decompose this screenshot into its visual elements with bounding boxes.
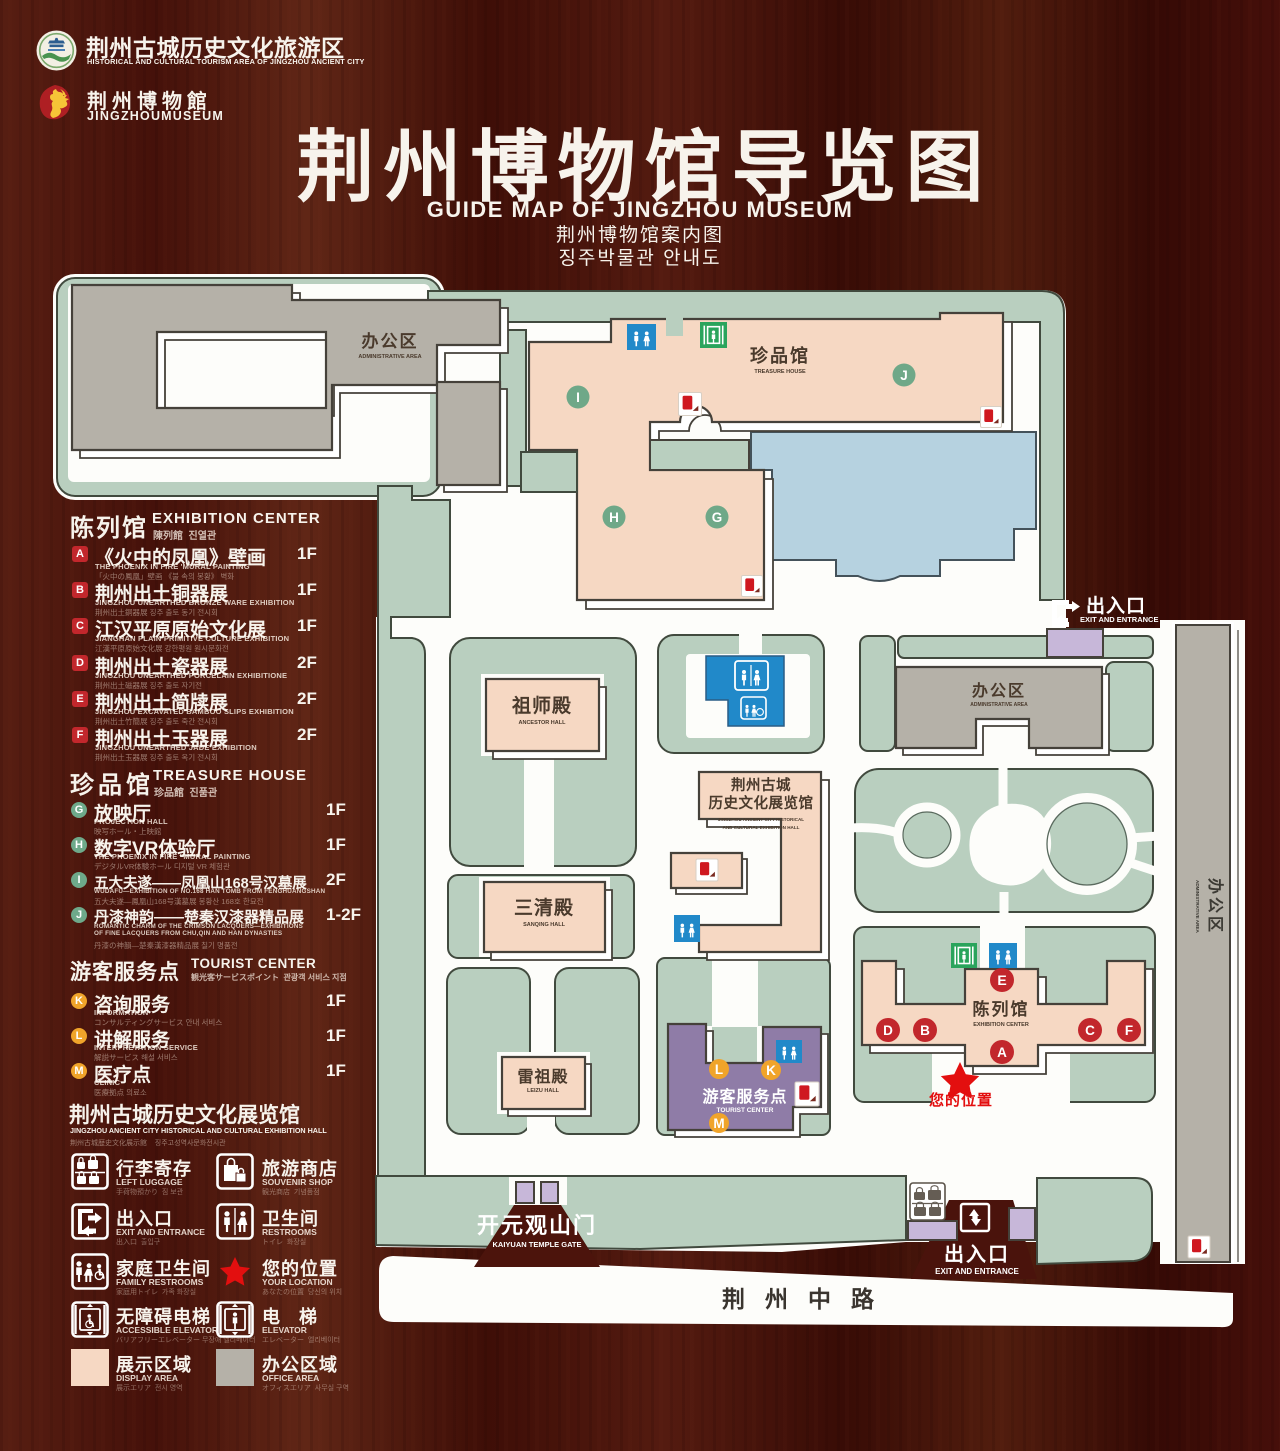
svg-text:荆州古城: 荆州古城 — [731, 776, 791, 794]
svg-text:A: A — [997, 1045, 1007, 1060]
svg-text:K: K — [766, 1063, 776, 1078]
svg-text:游客服务点: 游客服务点 — [702, 1087, 787, 1106]
svg-text:M: M — [713, 1116, 724, 1131]
svg-text:E: E — [997, 972, 1006, 988]
svg-text:KAIYUAN TEMPLE GATE: KAIYUAN TEMPLE GATE — [492, 1240, 581, 1249]
svg-text:珍品馆: 珍品馆 — [750, 345, 810, 366]
svg-text:G: G — [712, 510, 723, 525]
svg-text:H: H — [609, 510, 619, 525]
svg-text:ADMINISTRATIVE AREA: ADMINISTRATIVE AREA — [1195, 880, 1200, 934]
svg-text:D: D — [883, 1023, 893, 1038]
svg-text:荆州中路: 荆州中路 — [722, 1286, 894, 1312]
svg-text:EXIT AND ENTRANCE: EXIT AND ENTRANCE — [935, 1267, 1019, 1276]
svg-text:F: F — [1125, 1023, 1133, 1038]
svg-text:I: I — [576, 390, 580, 405]
svg-text:JINGZHOU ANCIENT CITY HISTORIC: JINGZHOU ANCIENT CITY HISTORICAL — [718, 817, 804, 822]
svg-text:J: J — [900, 368, 908, 383]
svg-text:出入口: 出入口 — [1086, 594, 1146, 617]
svg-text:办公区: 办公区 — [1206, 878, 1225, 935]
svg-text:开元观山门: 开元观山门 — [477, 1213, 597, 1238]
svg-text:C: C — [1085, 1023, 1095, 1038]
svg-text:TREASURE HOUSE: TREASURE HOUSE — [754, 369, 806, 375]
svg-text:陈列馆: 陈列馆 — [973, 999, 1030, 1019]
svg-text:TOURIST CENTER: TOURIST CENTER — [717, 1107, 774, 1114]
svg-text:EXHIBITION CENTER: EXHIBITION CENTER — [973, 1022, 1029, 1028]
svg-text:SANQING HALL: SANQING HALL — [523, 922, 566, 928]
svg-text:AND CULTURAL EXHIBITION HALL: AND CULTURAL EXHIBITION HALL — [723, 825, 800, 830]
svg-text:出入口: 出入口 — [944, 1243, 1010, 1266]
svg-text:ANCESTOR HALL: ANCESTOR HALL — [519, 720, 567, 726]
svg-text:B: B — [920, 1023, 930, 1038]
svg-text:EXIT AND ENTRANCE: EXIT AND ENTRANCE — [1080, 615, 1158, 624]
svg-text:历史文化展览馆: 历史文化展览馆 — [709, 794, 814, 812]
svg-text:ADMINISTRATIVE AREA: ADMINISTRATIVE AREA — [970, 702, 1028, 708]
svg-text:LEIZU HALL: LEIZU HALL — [527, 1088, 560, 1094]
svg-text:三清殿: 三清殿 — [514, 896, 574, 919]
svg-text:祖师殿: 祖师殿 — [511, 694, 572, 717]
svg-text:您的位置: 您的位置 — [928, 1091, 993, 1109]
svg-text:L: L — [715, 1062, 723, 1077]
svg-text:办公区: 办公区 — [972, 681, 1026, 700]
svg-text:雷祖殿: 雷祖殿 — [517, 1067, 568, 1086]
svg-text:办公区: 办公区 — [362, 331, 419, 351]
svg-text:ADMINISTRATIVE AREA: ADMINISTRATIVE AREA — [358, 354, 421, 360]
